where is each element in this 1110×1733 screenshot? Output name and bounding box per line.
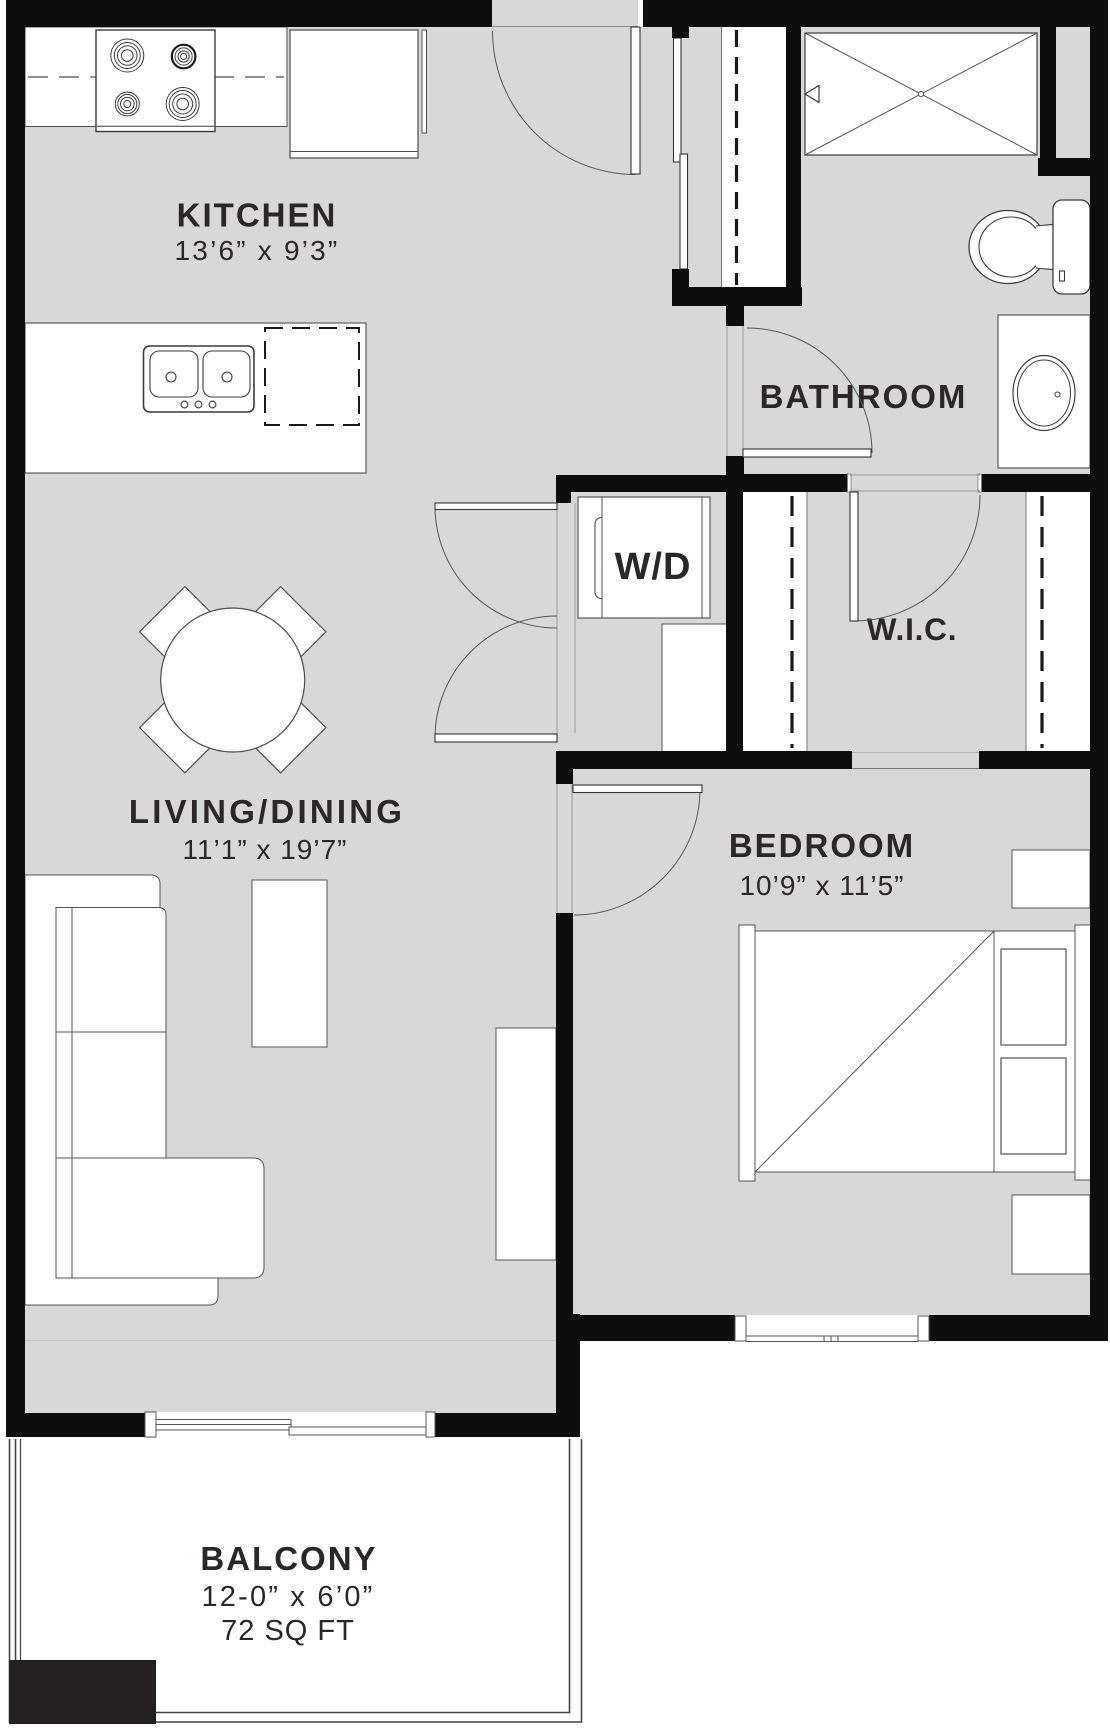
svg-text:LIVING/DINING: LIVING/DINING	[129, 793, 405, 830]
svg-text:BATHROOM: BATHROOM	[760, 378, 968, 415]
svg-text:11’1” x 19’7”: 11’1” x 19’7”	[182, 834, 347, 865]
svg-text:BEDROOM: BEDROOM	[729, 827, 915, 864]
svg-text:W/D: W/D	[615, 546, 692, 588]
svg-text:KITCHEN: KITCHEN	[177, 197, 338, 234]
svg-text:BALCONY: BALCONY	[200, 1540, 377, 1577]
svg-text:13’6” x 9’3”: 13’6” x 9’3”	[175, 235, 340, 266]
svg-text:W.I.C.: W.I.C.	[867, 611, 958, 647]
svg-text:12-0” x 6’0”: 12-0” x 6’0”	[201, 1581, 374, 1613]
svg-text:10’9” x 11’5”: 10’9” x 11’5”	[739, 870, 904, 901]
svg-text:72 SQ FT: 72 SQ FT	[221, 1615, 355, 1647]
